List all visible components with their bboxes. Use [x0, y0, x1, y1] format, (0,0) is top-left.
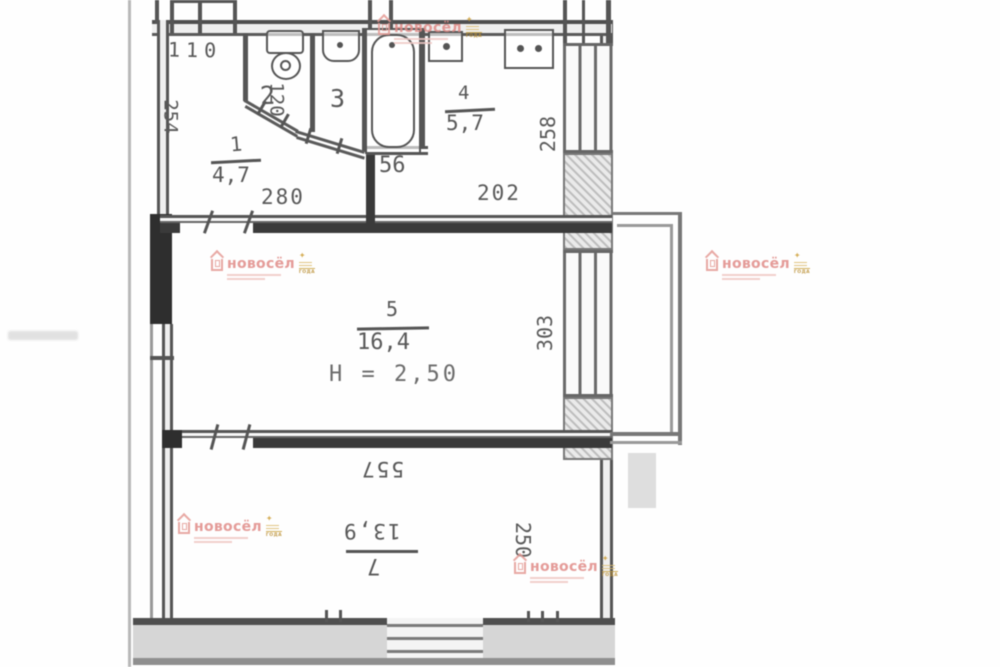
- bottom-wall-tick-1: [325, 610, 328, 622]
- wall-pier-hatched-upper: [563, 153, 613, 250]
- left-wall-lower: [162, 324, 173, 630]
- watermark-award-label: ГОДА: [266, 531, 282, 538]
- watermark-award-label: ГОДА: [466, 32, 482, 39]
- middle-wall-thick: [253, 223, 612, 233]
- dimension-110: 110: [168, 40, 222, 61]
- watermark-award-label: ГОДА: [299, 268, 315, 275]
- dimension-280: 280: [261, 187, 305, 208]
- watermark-award-label: ГОДА: [602, 571, 618, 578]
- watermark-tagline: [530, 577, 598, 583]
- left-wall-tick: [150, 356, 174, 360]
- left-wall-exterior-line: [150, 324, 153, 664]
- watermark: новосёл ✦ ГОДА: [706, 250, 810, 280]
- watermark-brand: новосёл: [530, 559, 598, 575]
- watermark: новосёл ✦ ГОДА: [178, 513, 282, 543]
- wc-left-wall: [243, 33, 248, 101]
- bottom-wall-tick-3: [527, 611, 530, 622]
- room-7-area: 13,9: [342, 520, 401, 541]
- watermark-award: ✦ ГОДА: [299, 252, 315, 275]
- top-stub-5: [368, 0, 372, 30]
- room-2-number: 2: [259, 83, 275, 109]
- balcony-rail-top-inner: [617, 224, 670, 227]
- entry-stub-4: [233, 0, 237, 33]
- balcony-rail-right-inner: [670, 224, 673, 434]
- balcony-shadow-blob: [628, 453, 656, 508]
- entry-stub-cap: [170, 0, 237, 3]
- watermark-award-label: ГОДА: [794, 268, 810, 275]
- balcony-rail-bottom: [610, 432, 682, 436]
- kitchen-window-edge-top: [563, 43, 613, 46]
- bottom-window-line-2: [387, 637, 483, 640]
- kitchen-sink-drain: [443, 43, 450, 50]
- room-1-area: 4,7: [212, 165, 250, 186]
- room-4-area: 5,7: [446, 113, 484, 134]
- balcony-rail-bottom-inner: [610, 441, 682, 444]
- left-margin-artifact: [8, 331, 78, 340]
- dimension-202: 202: [477, 183, 521, 204]
- wall-pier-hatched-lower: [563, 397, 613, 460]
- top-stub-8: [582, 0, 585, 43]
- bottom-wall-tick-2: [339, 610, 342, 622]
- watermark-award-icon: ✦: [299, 252, 315, 260]
- watermark-tagline: [227, 274, 295, 280]
- watermark-house-icon: [706, 259, 718, 271]
- ceiling-height-note: H = 2,50: [329, 364, 459, 386]
- bathtub-inner: [371, 34, 415, 148]
- watermark-brand: новосёл: [394, 20, 462, 36]
- dimension-303: 303: [530, 300, 560, 366]
- dimension-258: 258: [533, 100, 563, 168]
- dimension-56: 56: [379, 155, 406, 177]
- watermark: новосёл ✦ ГОДА: [514, 553, 618, 583]
- watermark-house-icon: [211, 259, 223, 271]
- top-stub-7: [563, 0, 567, 43]
- page-edge-line: [128, 0, 131, 667]
- bottom-wall-tick-4: [541, 611, 544, 622]
- watermark-tagline: [722, 274, 790, 280]
- watermark-house-icon: [378, 23, 390, 35]
- watermark-award: ✦ ГОДА: [266, 515, 282, 538]
- dimension-254: 254: [156, 80, 184, 152]
- middle-wall-left-stub: [160, 223, 180, 233]
- toilet-tank: [266, 30, 304, 54]
- room-1-number: 1: [229, 134, 243, 155]
- stove-burner-2: [535, 45, 542, 52]
- stove-burner-1: [517, 45, 524, 52]
- room-divider-thick: [253, 438, 612, 448]
- bottom-window-line-1: [387, 624, 483, 627]
- living-room-window: [563, 250, 613, 397]
- watermark-brand: новосёл: [227, 256, 295, 272]
- watermark-award: ✦ ГОДА: [794, 252, 810, 275]
- bathroom-sink-drain: [337, 42, 343, 48]
- watermark-award-icon: ✦: [602, 555, 618, 563]
- room-4-number: 4: [458, 84, 469, 103]
- kitchen-window: [563, 43, 613, 153]
- watermark-brand: новосёл: [722, 256, 790, 272]
- entry-stub-3: [198, 0, 202, 33]
- wc-bath-divider: [310, 33, 315, 132]
- watermark-brand: новосёл: [194, 519, 262, 535]
- room-divider-left-block: [162, 430, 182, 448]
- room-7-fraction-line: [346, 550, 418, 553]
- floor-plan: 110 254 120 280 56 202 258 303 557 250 1…: [0, 0, 1000, 667]
- living-room-window-edge-top: [563, 250, 613, 253]
- watermark-award-icon: ✦: [266, 515, 282, 523]
- middle-wall-upper-line: [160, 215, 612, 223]
- entry-stub-2: [170, 0, 174, 33]
- watermark-award: ✦ ГОДА: [466, 16, 482, 39]
- top-stub-9: [606, 0, 611, 43]
- vent-duct: [366, 155, 375, 228]
- room-5-area: 16,4: [357, 332, 410, 354]
- bottom-wall-tick-5: [556, 611, 559, 622]
- watermark-house-icon: [514, 562, 526, 574]
- watermark-tagline: [394, 38, 462, 44]
- balcony-rail-right: [678, 212, 682, 445]
- watermark-award-icon: ✦: [466, 16, 482, 24]
- room-3-number: 3: [330, 86, 345, 111]
- bottom-wall-outer-edge: [133, 658, 615, 665]
- watermark-house-icon: [178, 522, 190, 534]
- bottom-window-line-3: [387, 650, 483, 653]
- watermark-award-icon: ✦: [794, 252, 810, 260]
- watermark: новосёл ✦ ГОДА: [211, 250, 315, 280]
- room-5-number: 5: [386, 299, 398, 319]
- watermark-tagline: [194, 537, 262, 543]
- balcony-rail-top: [613, 212, 682, 215]
- watermark-award: ✦ ГОДА: [602, 555, 618, 578]
- room-7-number: 7: [367, 554, 380, 576]
- stove: [504, 29, 554, 69]
- watermark: новосёл ✦ ГОДА: [378, 14, 482, 44]
- dimension-557: 557: [360, 458, 404, 479]
- room-divider-wall-upper-line: [162, 430, 612, 438]
- floor-plan-scan: 110 254 120 280 56 202 258 303 557 250 1…: [0, 0, 1000, 667]
